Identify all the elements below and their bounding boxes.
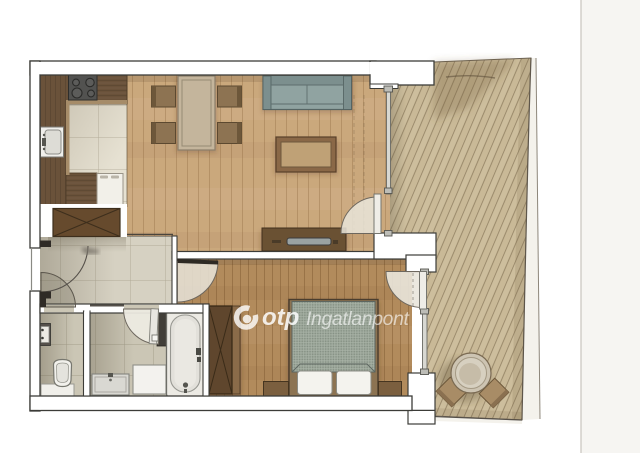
svg-text:Ingatlanpont: Ingatlanpont [306, 308, 411, 330]
svg-text:otp: otp [262, 304, 299, 331]
